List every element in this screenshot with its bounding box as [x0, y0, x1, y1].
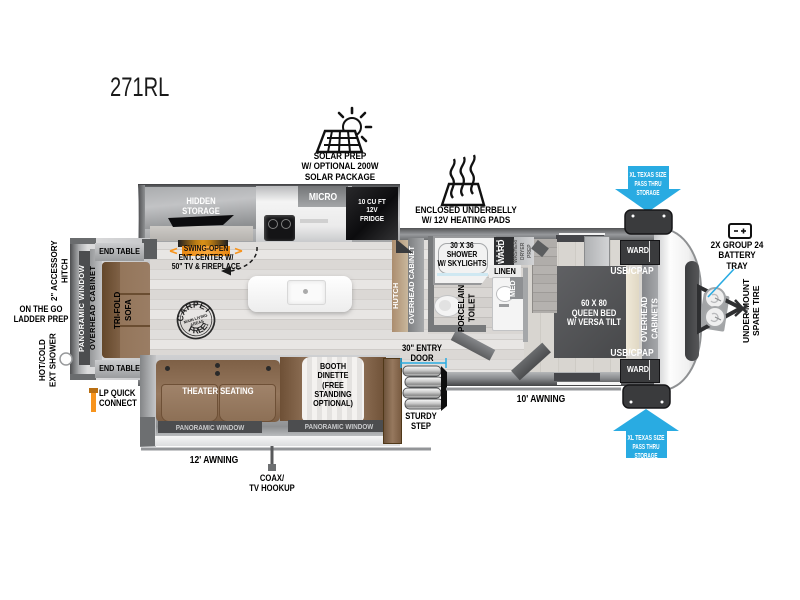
svg-text:XL TEXAS SIZE: XL TEXAS SIZE	[628, 435, 665, 442]
svg-text:PASS THRU: PASS THRU	[635, 181, 662, 188]
svg-text:STORAGE: STORAGE	[637, 190, 660, 197]
svg-text:STORAGE: STORAGE	[635, 453, 658, 460]
svg-text:XL TEXAS SIZE: XL TEXAS SIZE	[630, 172, 667, 179]
svg-text:PASS THRU: PASS THRU	[633, 444, 660, 451]
